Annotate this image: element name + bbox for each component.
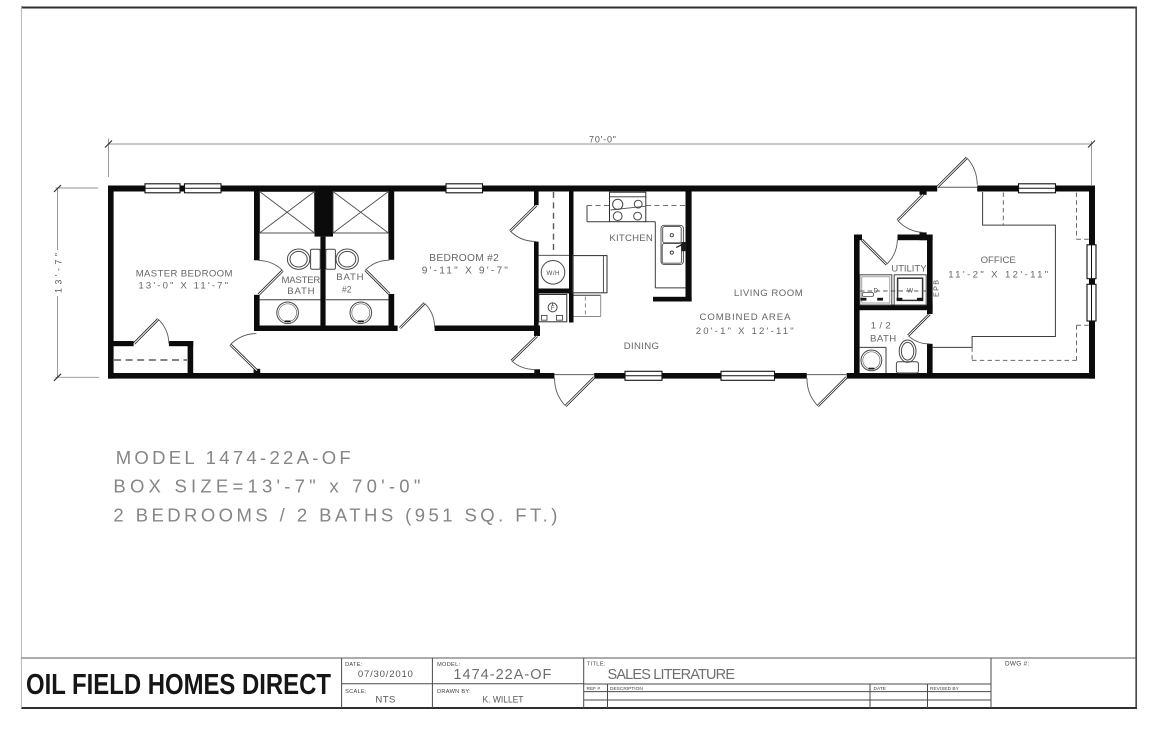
svg-text:BOX SIZE=13'-7" x 70'-0": BOX SIZE=13'-7" x 70'-0"	[113, 475, 420, 496]
svg-text:1/2: 1/2	[871, 320, 891, 331]
svg-text:EPB: EPB	[932, 280, 941, 297]
svg-text:SALES LITERATURE: SALES LITERATURE	[608, 667, 736, 683]
svg-text:NTS: NTS	[375, 695, 395, 706]
svg-text:BATH: BATH	[336, 272, 363, 283]
svg-text:LIVING ROOM: LIVING ROOM	[734, 288, 803, 299]
svg-text:F: F	[551, 306, 555, 312]
svg-text:BEDROOM #2: BEDROOM #2	[429, 253, 499, 264]
svg-text:REVISED BY: REVISED BY	[930, 686, 960, 692]
svg-text:#2: #2	[342, 285, 352, 296]
svg-text:BATH: BATH	[870, 334, 896, 345]
svg-text:REF #: REF #	[587, 686, 601, 692]
svg-text:DWG #:: DWG #:	[1005, 660, 1030, 667]
svg-text:DESCRIPTION: DESCRIPTION	[610, 686, 643, 692]
svg-text:MASTER BEDROOM: MASTER BEDROOM	[136, 268, 233, 279]
svg-text:OFFICE: OFFICE	[981, 255, 1016, 266]
svg-text:DATE:: DATE:	[345, 662, 363, 668]
svg-text:SCALE:: SCALE:	[345, 689, 367, 695]
svg-text:MASTER: MASTER	[282, 275, 321, 286]
svg-text:1474-22A-OF: 1474-22A-OF	[453, 667, 551, 683]
svg-text:DATE: DATE	[874, 686, 886, 692]
svg-text:KITCHEN: KITCHEN	[609, 233, 652, 244]
svg-text:OIL FIELD HOMES DIRECT: OIL FIELD HOMES DIRECT	[26, 669, 331, 701]
svg-text:07/30/2010: 07/30/2010	[358, 669, 413, 680]
svg-text:W/H: W/H	[547, 270, 560, 277]
svg-text:2 BEDROOMS / 2 BATHS (951: 2 BEDROOMS / 2 BATHS (951 SQ. FT.)	[113, 504, 557, 525]
svg-text:UTILITY: UTILITY	[891, 264, 927, 275]
svg-text:TITLE:: TITLE:	[587, 661, 606, 667]
svg-text:COMBINED AREA: COMBINED AREA	[700, 312, 792, 323]
svg-text:K. WILLET: K. WILLET	[483, 695, 524, 706]
svg-text:BATH: BATH	[287, 286, 314, 297]
svg-text:DRAWN BY:: DRAWN BY:	[437, 689, 471, 695]
svg-text:70'-0": 70'-0"	[589, 135, 616, 145]
svg-text:DINING: DINING	[624, 341, 659, 352]
